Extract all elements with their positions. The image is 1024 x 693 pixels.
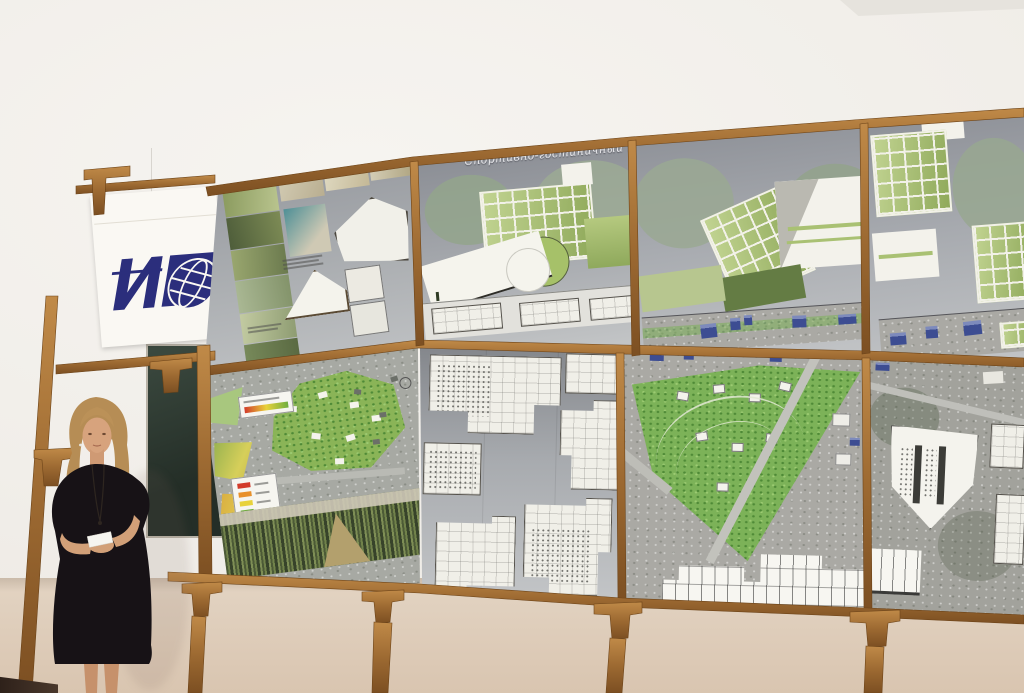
presenter-earring	[79, 444, 82, 447]
bottom-corbel-4	[850, 610, 900, 647]
necklace-pendant	[98, 521, 102, 525]
bottom-corbel-3	[594, 602, 642, 639]
joint-c-d	[860, 123, 870, 354]
joint-a-b	[410, 161, 424, 346]
bottom-post-4	[864, 646, 884, 693]
top-rail	[206, 108, 1024, 196]
presenter-face	[83, 418, 112, 455]
presenter-figure	[0, 393, 200, 693]
joint-b-c	[628, 140, 640, 356]
presenter-eye	[88, 433, 92, 435]
presenter-dress	[52, 464, 152, 664]
mid-left-corbel	[150, 358, 192, 393]
bottom-corbel-2	[362, 590, 404, 623]
bottom-post-3	[606, 638, 626, 693]
mid-rail	[200, 340, 1024, 376]
photo-scene: Спортивно-гостиничный ко мплекс “БОРИСОГ…	[0, 0, 1024, 693]
joint-f-g	[616, 353, 626, 602]
presenter-eye	[102, 433, 106, 435]
presenter-leg	[104, 664, 119, 693]
joint-g-h	[862, 358, 872, 611]
bottom-post-2	[372, 622, 392, 693]
presenter-leg	[84, 664, 98, 693]
